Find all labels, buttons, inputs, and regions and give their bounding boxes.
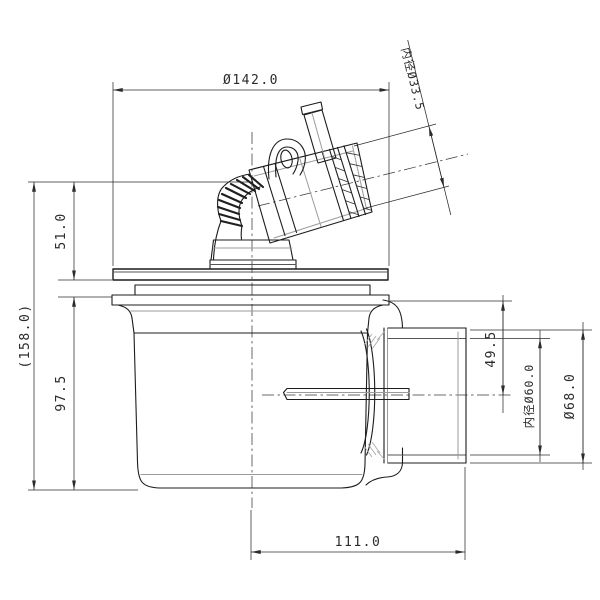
coupling-inner-bottom-line: [274, 208, 368, 238]
bell-top-curve: [383, 300, 403, 328]
dim-label-inlet-bore: 内径Ø33.5: [398, 46, 427, 112]
dim-label-top-width: Ø142.0: [223, 73, 279, 88]
body-outline: [134, 333, 368, 488]
lift-ring-hole: [279, 149, 294, 169]
dimensions-right: 49.5 内径Ø60.0 Ø68.0: [390, 295, 592, 470]
coupling-collar-ring-1: [264, 167, 286, 236]
coupling-rib-1: [322, 152, 344, 221]
dim-label-outlet-bore: 内径Ø60.0: [522, 364, 536, 429]
flange-plate-top: [113, 269, 388, 280]
dim-label-upper-height: 51.0: [54, 212, 69, 249]
body-shoulder-left: [118, 305, 134, 333]
outlet-assembly: [284, 300, 467, 485]
trap-body: [134, 333, 368, 488]
gasket-hatch-bottom: [364, 442, 385, 460]
dimension-bottom-length: 111.0: [251, 467, 465, 560]
ext-line-lower: [366, 186, 449, 208]
centerlines: [252, 132, 514, 508]
dim-label-center-drop: 49.5: [484, 330, 499, 367]
dimensions-left: (158.0) 51.0 97.5: [18, 182, 252, 490]
technical-drawing-page: Ø142.0 内径Ø33.5 (158.0) 51.0 97.5 49.5 内径…: [0, 0, 600, 600]
flange-plates: [112, 269, 389, 333]
corrugation-rungs: [218, 175, 263, 226]
dim-line-arrows: [429, 127, 444, 188]
inlet-elbow-assembly: [210, 102, 372, 269]
coupling-mid-seam: [300, 158, 322, 227]
ext-line-upper: [354, 124, 436, 146]
dim-label-outlet-length: 111.0: [335, 535, 382, 550]
flange-plate-lower: [112, 295, 389, 305]
elbow-neck-right: [241, 226, 242, 239]
drain-trap-technical-drawing: Ø142.0 内径Ø33.5 (158.0) 51.0 97.5 49.5 内径…: [0, 0, 600, 600]
dim-label-body-height: 97.5: [54, 374, 69, 411]
dimension-inlet-bore: 内径Ø33.5: [354, 40, 451, 215]
flange-spacer-ring: [135, 285, 370, 295]
body-shoulder-right: [368, 305, 384, 333]
dim-label-outlet-od: Ø68.0: [563, 373, 578, 420]
crossbar-outline: [284, 389, 410, 400]
dim-label-overall-height: (158.0): [18, 303, 33, 368]
